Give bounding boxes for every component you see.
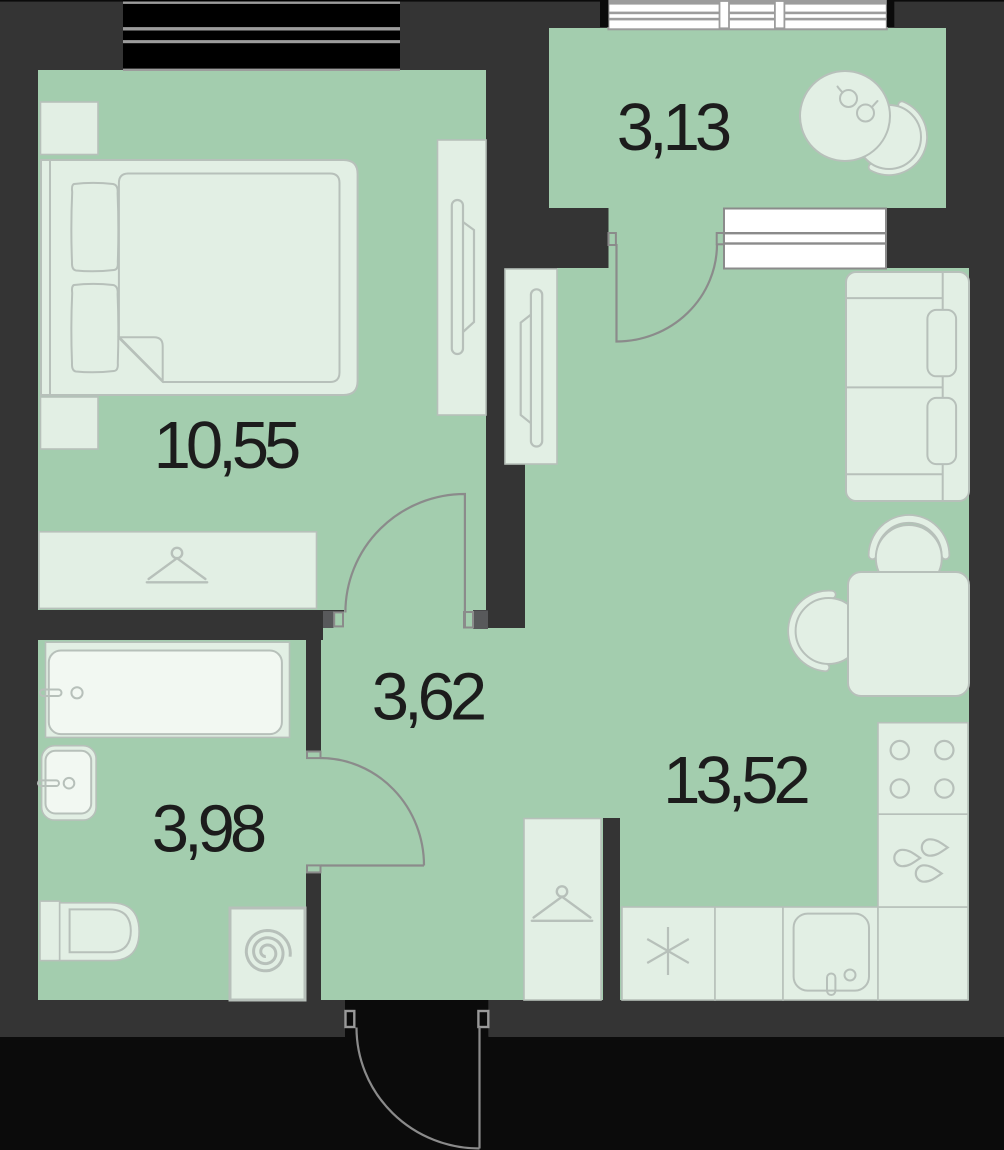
svg-text:3,13: 3,13 xyxy=(617,90,730,165)
svg-text:3,62: 3,62 xyxy=(372,660,484,735)
svg-text:13,52: 13,52 xyxy=(663,743,807,818)
svg-text:3,98: 3,98 xyxy=(152,791,265,866)
svg-text:10,55: 10,55 xyxy=(154,408,299,483)
